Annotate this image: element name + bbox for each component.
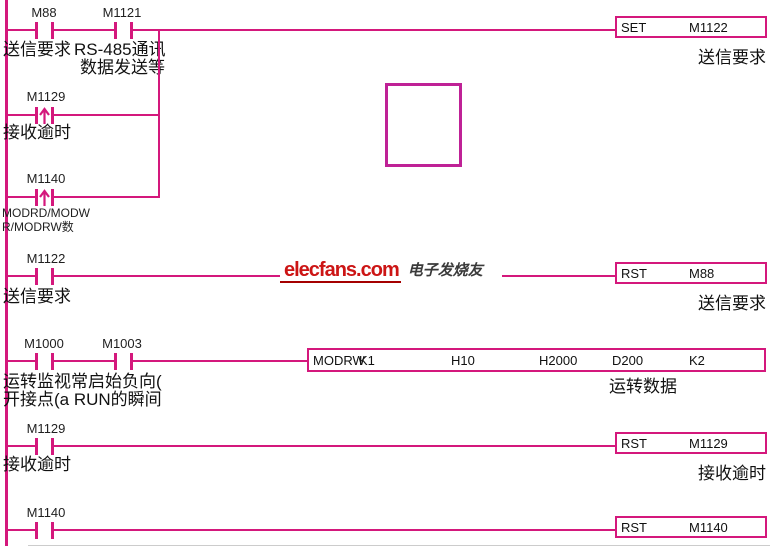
contact-m1121[interactable] (114, 22, 133, 39)
contact-label: M1000 (22, 336, 66, 351)
coil-op: RST (621, 436, 647, 451)
set-coil-box[interactable]: SET M1122 (615, 16, 767, 38)
contact-desc: 开接点(a RUN的瞬间 (3, 391, 162, 409)
rung3-line (133, 360, 307, 362)
contact-m1122[interactable] (35, 268, 54, 285)
rst-coil-box[interactable]: RST M88 (615, 262, 767, 284)
contact-label: M1003 (100, 336, 144, 351)
contact-m1129[interactable] (35, 438, 54, 455)
contact-label: M1122 (24, 251, 68, 266)
rung4-line (54, 445, 617, 447)
rst-coil-box[interactable]: RST M1140 (615, 516, 767, 538)
rung4-line (6, 445, 35, 447)
rising-edge-arrow-icon (38, 188, 51, 207)
rung5-line (6, 529, 35, 531)
coil-op: RST (621, 520, 647, 535)
instr-arg: H10 (451, 353, 475, 368)
branch2-line (54, 196, 159, 198)
instr-arg: K2 (689, 353, 705, 368)
rung1-line (54, 29, 114, 31)
rung5-line (54, 529, 617, 531)
contact-desc: 数据发送等 (80, 59, 165, 77)
contact-m1129-rising[interactable] (35, 107, 54, 124)
coil-desc: 接收逾时 (640, 459, 766, 484)
coil-op: RST (621, 266, 647, 281)
instr-arg: D200 (612, 353, 643, 368)
contact-m1000[interactable] (35, 353, 54, 370)
rung1-line (133, 29, 617, 31)
contact-m88[interactable] (35, 22, 54, 39)
elecfans-logo: elecfans.com (280, 260, 401, 283)
modrw-instruction-box[interactable]: MODRW K1 H10 H2000 D200 K2 (307, 348, 766, 372)
instr-arg: K1 (359, 353, 375, 368)
contact-label: M1140 (24, 505, 68, 520)
coil-operand: M1140 (689, 520, 728, 535)
instr-desc: 运转数据 (609, 378, 677, 396)
contact-desc: 运转监视常启始负向( (3, 373, 162, 391)
rst-coil-box[interactable]: RST M1129 (615, 432, 767, 454)
rung2-line (6, 275, 35, 277)
coil-operand: M1122 (689, 20, 728, 35)
bottom-border-line (28, 545, 770, 546)
rung1-line (6, 29, 35, 31)
contact-label: M1129 (24, 421, 68, 436)
branch1-line (6, 114, 35, 116)
contact-m1003[interactable] (114, 353, 133, 370)
rung3-line (6, 360, 35, 362)
contact-m1140-rising[interactable] (35, 189, 54, 206)
branch2-line (6, 196, 35, 198)
contact-label: M1140 (24, 171, 68, 186)
coil-operand: M1129 (689, 436, 728, 451)
contact-desc: 接收逾时 (3, 124, 71, 142)
watermark: elecfans.com 电子发烧友 (280, 254, 502, 283)
coil-desc: 送信要求 (640, 289, 766, 314)
rung3-line (54, 360, 114, 362)
contact-desc: MODRD/MODW (2, 206, 90, 220)
contact-label: M1121 (100, 5, 144, 20)
instr-arg: H2000 (539, 353, 577, 368)
contact-m1140[interactable] (35, 522, 54, 539)
coil-desc: 送信要求 (640, 43, 766, 68)
coil-op: SET (621, 20, 646, 35)
contact-desc: 接收逾时 (3, 456, 71, 474)
watermark-cn-text: 电子发烧友 (408, 259, 483, 283)
branch1-line (54, 114, 159, 116)
contact-label: M1129 (24, 89, 68, 104)
coil-operand: M88 (689, 266, 714, 281)
contact-desc: R/MODRW数 (2, 220, 74, 234)
contact-desc: 送信要求 (3, 41, 71, 59)
contact-label: M88 (22, 5, 66, 20)
ladder-diagram: M88 M1121 送信要求 RS-485通讯 数据发送等 M1129 接收逾时… (0, 0, 770, 550)
empty-selection-box[interactable] (385, 83, 462, 167)
contact-desc: RS-485通讯 (74, 41, 166, 59)
instr-op: MODRW (313, 353, 365, 368)
contact-desc: 送信要求 (3, 288, 71, 306)
